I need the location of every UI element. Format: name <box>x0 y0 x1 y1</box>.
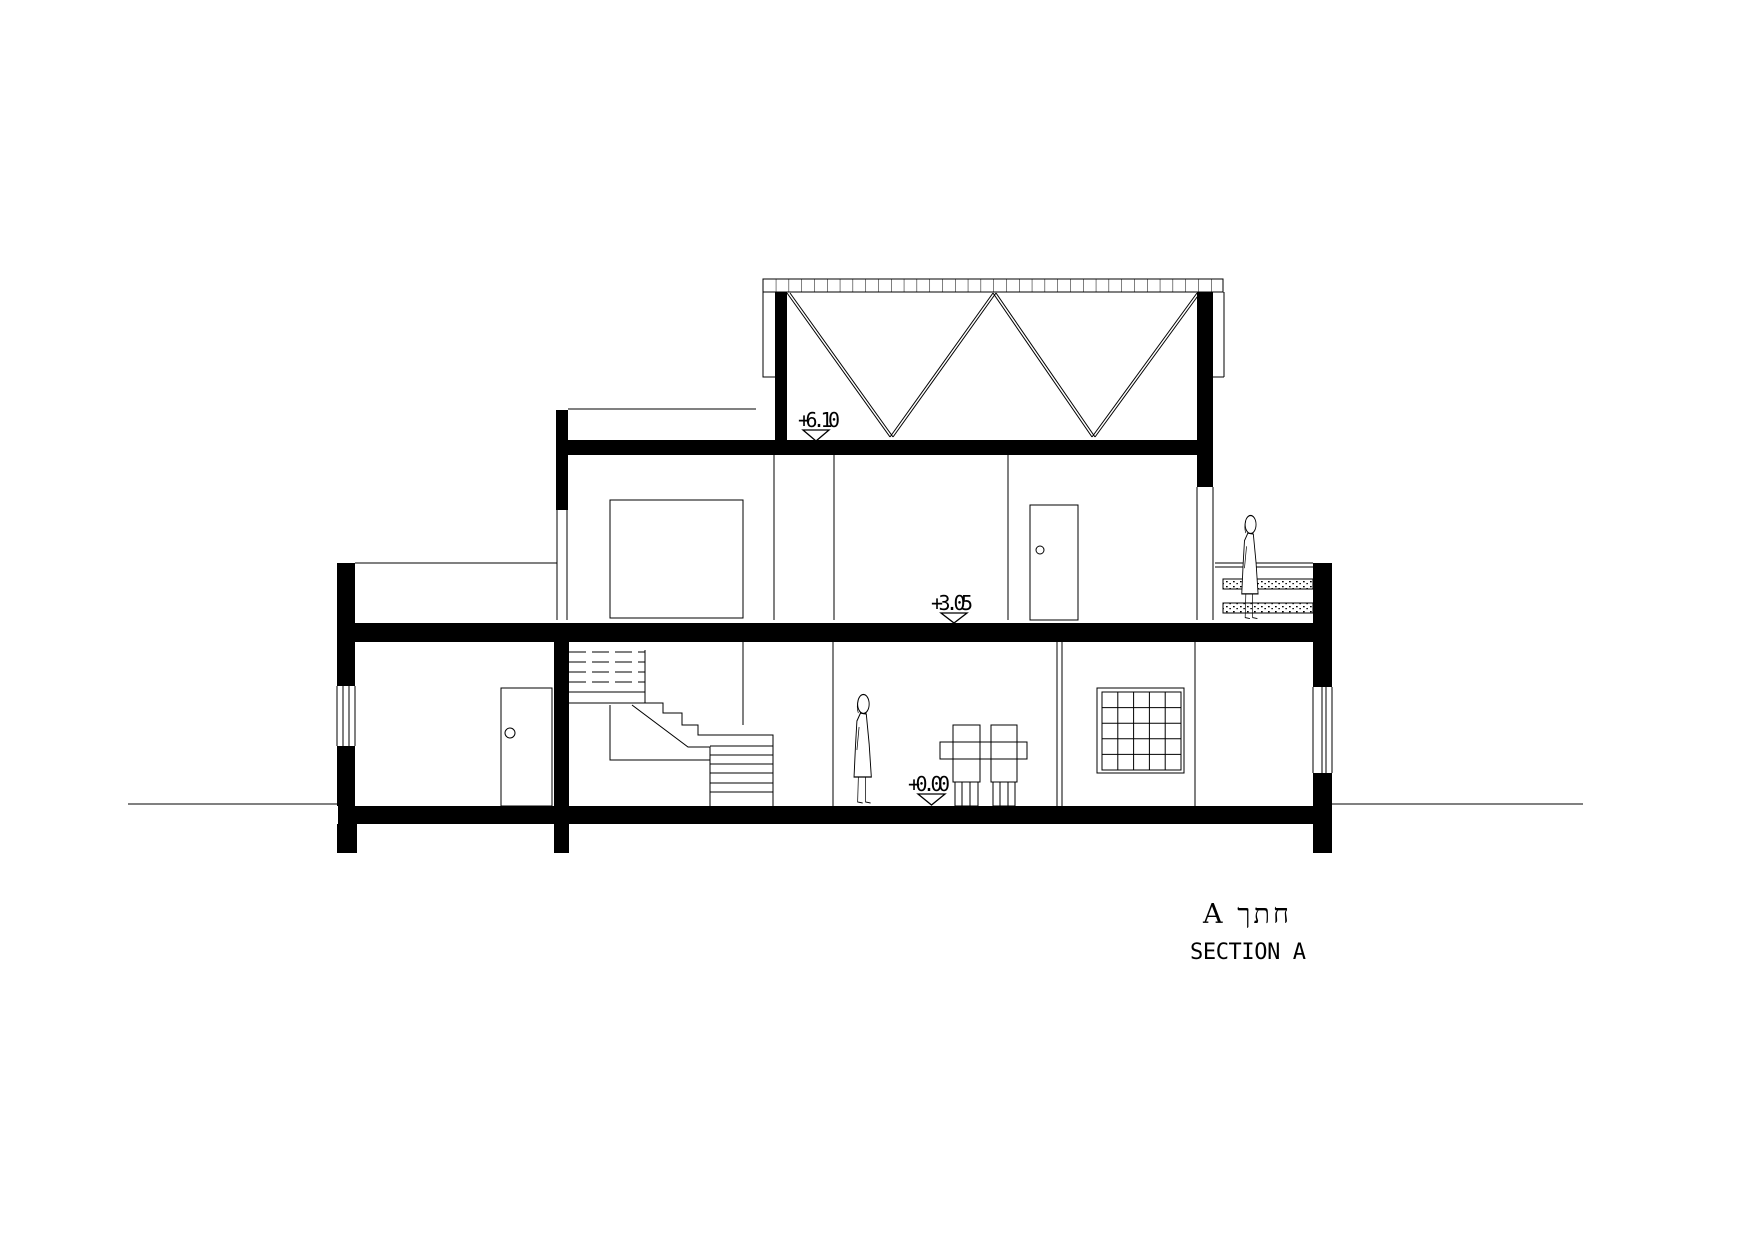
roof-truss <box>763 292 1224 620</box>
right-terrace <box>1215 563 1313 613</box>
ground-floor-slab <box>338 806 1332 824</box>
level-marker-upper: +3.05 <box>931 591 973 623</box>
exterior-wall-left <box>337 563 355 806</box>
chair-legs <box>955 782 1015 806</box>
truss-diagonals <box>787 293 1200 437</box>
level-marker-ground: +0.00 <box>908 772 950 805</box>
staircase <box>568 642 773 806</box>
drawing-title-english: SECTION A <box>1190 940 1307 965</box>
level-label-ground: +0.00 <box>908 772 950 796</box>
left-wall-window <box>337 686 355 746</box>
exterior-wall-right <box>1313 563 1332 806</box>
upper-floor-opening <box>610 500 743 618</box>
truss-side-outlines <box>763 292 1224 377</box>
upper-floor-door <box>1030 505 1078 620</box>
lower-flight-lines <box>710 746 773 792</box>
roof-deck <box>763 279 1223 292</box>
door-knob-icon <box>1036 546 1044 554</box>
level-marker-roof: +6.10 <box>798 408 840 441</box>
stair-stringer <box>632 705 710 806</box>
level-label-upper: +3.05 <box>931 591 973 615</box>
understair-outline <box>610 705 710 760</box>
dining-table-and-chairs <box>940 725 1027 806</box>
interior-wall-center <box>554 642 569 806</box>
right-wall-window <box>1313 687 1332 773</box>
upper-floor-slab <box>337 623 1332 642</box>
level-label-roof: +6.10 <box>798 408 840 432</box>
upper-flight-hatch <box>568 650 645 703</box>
ground-floor-door <box>501 688 552 806</box>
person-ground-floor <box>854 695 871 804</box>
drawing-title-hebrew: A חתך <box>1202 899 1289 930</box>
truss-wall-glazing <box>1197 487 1213 620</box>
drawing-title: A חתך SECTION A <box>1190 899 1307 965</box>
ground-floor-window-grid <box>1097 688 1184 773</box>
wall-footings <box>337 824 1332 853</box>
roof-slab <box>568 440 1213 455</box>
upper-left-wall <box>556 410 568 620</box>
ground-floor-partitions <box>833 642 1195 806</box>
door-knob-icon <box>505 728 515 738</box>
architectural-section-drawing: +6.10 +3.05 +0.00 A חתך SECTION A <box>0 0 1754 1240</box>
